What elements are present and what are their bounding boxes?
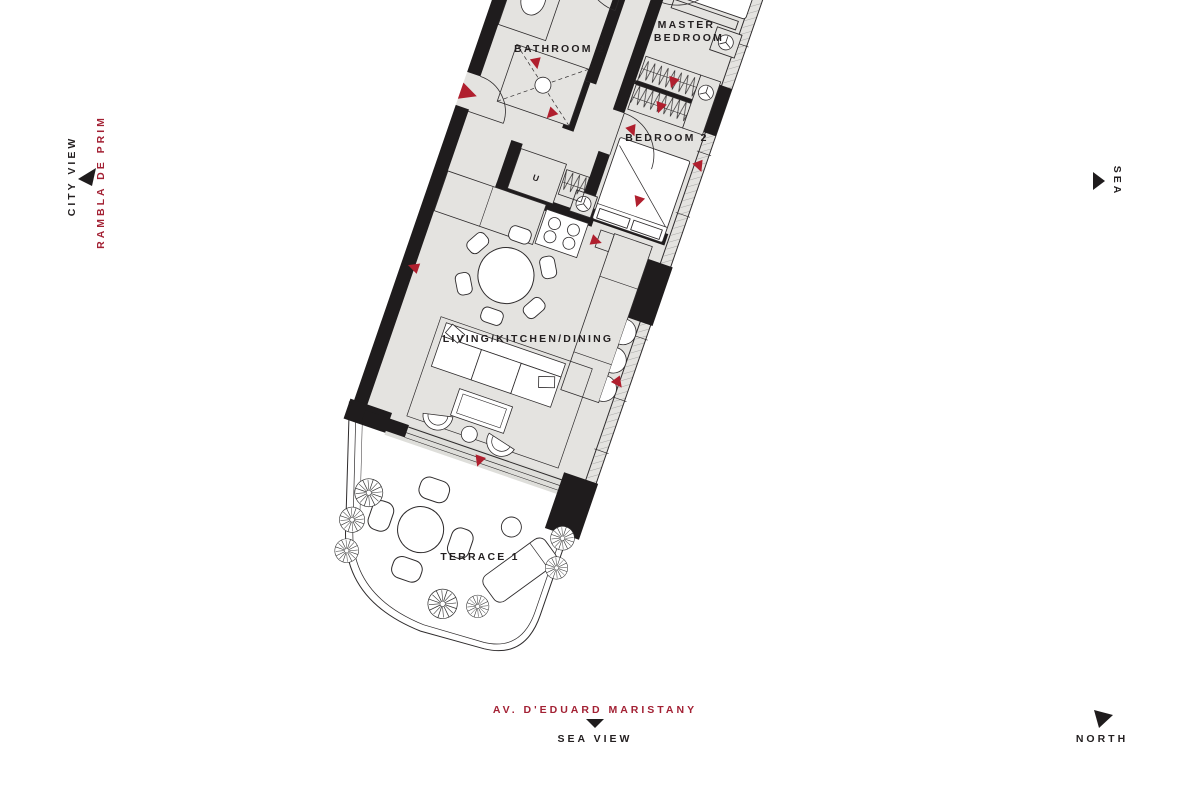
bedroom2-label: BEDROOM 2: [625, 132, 708, 144]
master-bedroom-label: MASTER BEDROOM: [654, 19, 724, 44]
terrace1-label: TERRACE 1: [440, 551, 519, 563]
sea-label: SEA: [1111, 166, 1123, 197]
av-eduard-maristany-label: AV. D'EDUARD MARISTANY: [493, 704, 697, 716]
north-arrow-icon: [1094, 710, 1113, 728]
bathroom2-label: BATHROOM 2: [514, 43, 606, 55]
floor-plan-canvas: U BATHROOM 2 MASTER BEDROOM BEDROOM 2 LI…: [0, 0, 1190, 790]
city-view-arrow-icon: [78, 168, 96, 186]
living-kitchen-dining-label: LIVING/KITCHEN/DINING: [443, 333, 613, 345]
sea-view-arrow-icon: [586, 719, 604, 728]
city-view-label: CITY VIEW: [66, 136, 78, 216]
floor-plan-page: U BATHROOM 2 MASTER BEDROOM BEDROOM 2 LI…: [0, 0, 1190, 790]
north-label: NORTH: [1076, 733, 1128, 745]
sea-arrow-icon: [1093, 172, 1105, 190]
sea-view-label: SEA VIEW: [558, 733, 633, 745]
rambla-de-prim-label: RAMBLA DE PRIM: [95, 115, 107, 249]
